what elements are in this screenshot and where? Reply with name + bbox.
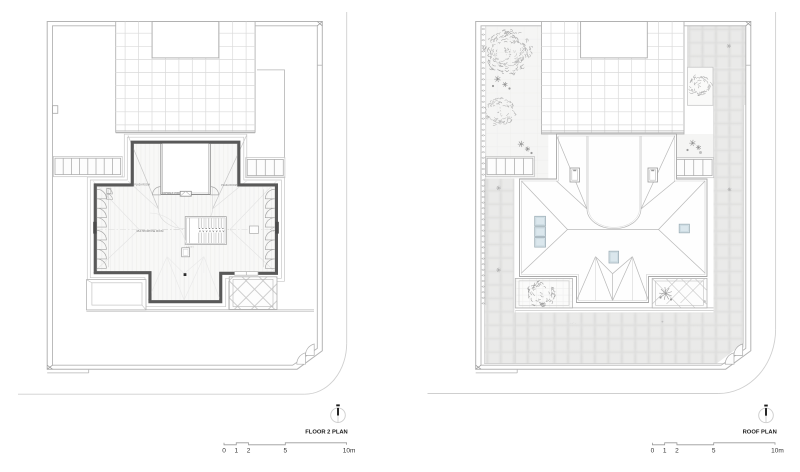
svg-text:ROOF PLAN: ROOF PLAN (743, 430, 777, 436)
svg-text:5: 5 (283, 447, 287, 454)
svg-text:0: 0 (222, 447, 226, 454)
svg-text:PLAZA ROOM: PLAZA ROOM (221, 184, 237, 187)
svg-text:PLAZA ROOM: PLAZA ROOM (134, 184, 150, 187)
svg-text:5: 5 (712, 447, 716, 454)
svg-text:2: 2 (247, 447, 251, 454)
svg-text:10m: 10m (771, 447, 784, 454)
svg-text:MULTIPURPOSE ROOM: MULTIPURPOSE ROOM (137, 230, 164, 233)
svg-text:FLOOR 2 PLAN: FLOOR 2 PLAN (305, 430, 348, 436)
svg-text:0: 0 (651, 447, 655, 454)
svg-text:10m: 10m (343, 447, 356, 454)
svg-text:2: 2 (675, 447, 679, 454)
svg-text:1: 1 (663, 447, 667, 454)
svg-text:CATWALK VOID: CATWALK VOID (162, 192, 180, 195)
svg-text:1: 1 (234, 447, 238, 454)
svg-text:. , · .: . , · . (570, 321, 576, 325)
